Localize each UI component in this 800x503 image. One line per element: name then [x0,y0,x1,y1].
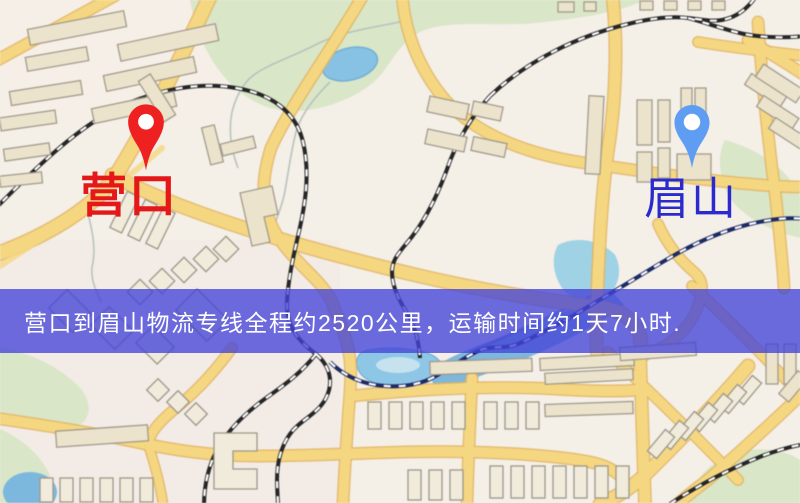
map-screenshot: 营口到眉山物流专线全程约2520公里，运输时间约1天7小时. 营口 眉山 [0,0,800,503]
route-info-banner: 营口到眉山物流专线全程约2520公里，运输时间约1天7小时. [0,289,800,353]
destination-pin-icon[interactable] [671,104,713,175]
destination-label: 眉山 [644,176,738,221]
origin-label: 营口 [80,172,178,219]
map-background[interactable] [0,0,800,503]
origin-pin-icon[interactable] [125,103,167,178]
route-info-text: 营口到眉山物流专线全程约2520公里，运输时间约1天7小时. [24,304,681,338]
